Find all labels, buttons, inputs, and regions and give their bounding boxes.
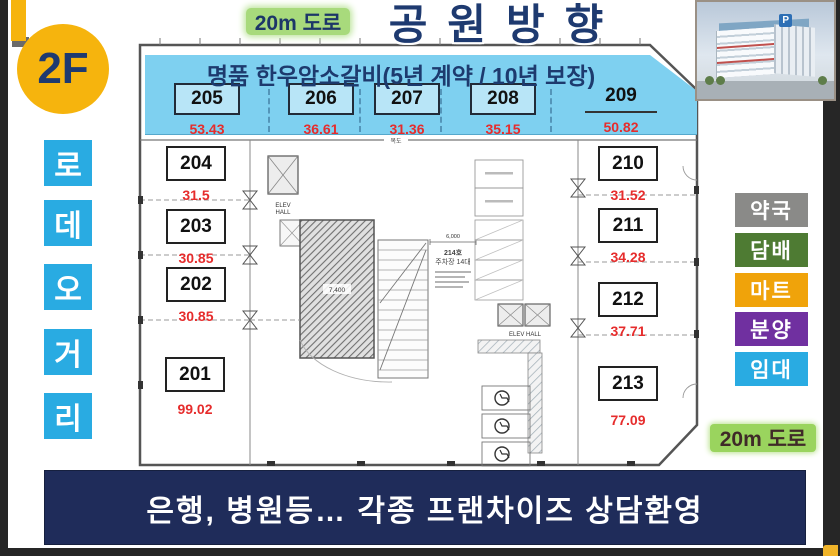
corner-decoration	[823, 545, 838, 556]
hatched-corridor	[478, 340, 540, 353]
unit-number: 202	[166, 267, 226, 302]
note-line	[435, 276, 465, 278]
unit-area: 77.09	[592, 412, 664, 428]
unit-area: 35.15	[467, 121, 539, 137]
badge-ribbon	[11, 0, 26, 41]
building-render-image: P	[695, 0, 836, 101]
elev-hall-label: ELEV	[275, 203, 290, 209]
banner-separator	[550, 89, 552, 132]
unit-cell-204: 204 31.5	[160, 146, 232, 203]
unit-cell-211: 211 34.28	[592, 208, 664, 265]
ramp-dimension: 7,400	[329, 287, 346, 294]
category-label-sale: 분양	[735, 312, 808, 346]
rodeo-street-letter: 거	[44, 329, 92, 375]
unit-cell-201: 201 99.02	[159, 357, 231, 417]
unit-area: 31.36	[371, 121, 443, 137]
unit-area: 34.28	[592, 249, 664, 265]
unit-cell-208: 208 35.15	[467, 83, 539, 137]
road-label-bottom: 20m 도로	[710, 424, 816, 452]
unit-cell-202: 202 30.85	[160, 267, 232, 324]
unit-area: 31.5	[160, 187, 232, 203]
road-label-top: 20m 도로	[246, 8, 350, 35]
floor-badge: 2F	[17, 24, 109, 114]
unit-number: 211	[598, 208, 658, 243]
unit-cell-213: 213 77.09	[592, 366, 664, 428]
note-line	[435, 281, 469, 283]
unit-number: 203	[166, 209, 226, 244]
room-label-line	[485, 200, 513, 203]
elev-hall-label: ELEV HALL	[509, 332, 542, 338]
category-label-tobacco: 담배	[735, 233, 808, 267]
unit-area: 50.82	[585, 119, 657, 135]
parking-dimension: 6,000	[446, 234, 460, 240]
note-line	[435, 271, 471, 273]
corridor-label: 복도	[390, 138, 402, 145]
note-line	[435, 286, 463, 288]
unit-area: 36.61	[285, 121, 357, 137]
unit-number: 210	[598, 146, 658, 181]
unit-area: 30.85	[160, 250, 232, 266]
unit-area: 30.85	[160, 308, 232, 324]
unit-cell-206: 206 36.61	[285, 83, 357, 137]
unit-number: 213	[598, 366, 658, 401]
unit-cell-212: 212 37.71	[592, 282, 664, 339]
unit-area: 53.43	[171, 121, 243, 137]
room-label-line	[485, 172, 513, 175]
building-side-face	[774, 24, 815, 77]
building-front-face	[716, 27, 775, 78]
elev-hall-label: HALL	[275, 210, 291, 216]
building-red-stripe	[717, 43, 775, 49]
anchor-tenant-banner: 명품 한우암소갈비(5년 계약 / 10년 보장) 205 53.43 206 …	[145, 55, 697, 135]
category-label-pharmacy: 약국	[735, 193, 808, 227]
category-label-mart: 마트	[735, 273, 808, 307]
unit-area: 37.71	[592, 323, 664, 339]
slide-edge-left	[0, 0, 8, 556]
anchor-tenant-title: 명품 한우암소갈비(5년 계약 / 10년 보장)	[145, 57, 657, 91]
unit-number: 204	[166, 146, 226, 181]
rodeo-street-letter: 데	[44, 200, 92, 246]
banner-separator	[268, 89, 270, 132]
category-label-lease: 임대	[735, 352, 808, 386]
rodeo-street-letter: 리	[44, 393, 92, 439]
unit-cell-205: 205 53.43	[171, 83, 243, 137]
parking-capacity-label: 주차장 14대	[435, 257, 471, 266]
parking-unit-label: 214호	[444, 248, 463, 257]
rodeo-street-letter: 로	[44, 140, 92, 186]
unit-cell-210: 210 31.52	[592, 146, 664, 203]
floor-badge-label: 2F	[37, 44, 88, 94]
unit-cell-203: 203 30.85	[160, 209, 232, 266]
building-red-stripe	[717, 58, 775, 64]
tree	[818, 76, 827, 85]
unit-area: 31.52	[592, 187, 664, 203]
unit-number: 201	[165, 357, 225, 392]
rodeo-street-letter: 오	[44, 264, 92, 310]
banner-separator	[359, 89, 361, 132]
unit-area: 99.02	[159, 401, 231, 417]
promo-banner: 은행, 병원등… 각종 프랜차이즈 상담환영	[44, 470, 806, 545]
parking-sign: P	[779, 14, 792, 27]
unit-cell-207: 207 31.36	[371, 83, 443, 137]
slide-edge-bottom	[0, 548, 840, 556]
unit-number: 212	[598, 282, 658, 317]
page-title: 공원방향	[348, 0, 664, 50]
promo-banner-text: 은행, 병원등… 각종 프랜차이즈 상담환영	[146, 486, 703, 530]
